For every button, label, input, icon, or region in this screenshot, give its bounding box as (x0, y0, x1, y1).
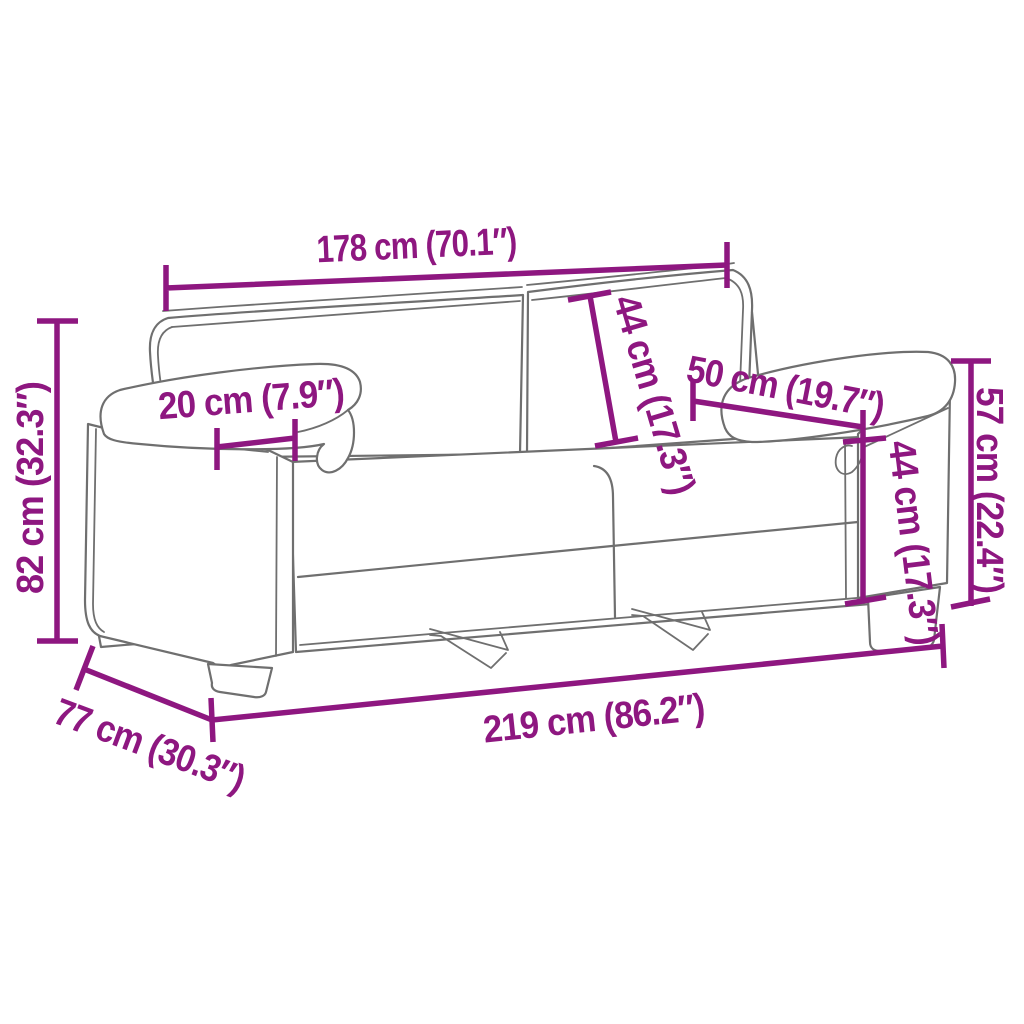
sofa-foot-front-left (208, 664, 272, 697)
sofa-dimension-drawing: 178 cm (70.1″) 44 cm (17.3″) 50 cm (19.7… (0, 0, 1024, 1024)
dimension-total-height: 82 cm (32.3″) (10, 321, 78, 641)
dimension-diagram: 178 cm (70.1″) 44 cm (17.3″) 50 cm (19.7… (0, 0, 1024, 1024)
dimension-total-depth-label: 77 cm (30.3″) (48, 691, 250, 800)
sofa-drawing (85, 263, 955, 697)
dimension-armrest-height: 57 cm (22.4″) (951, 361, 1010, 607)
dimension-total-width-label: 219 cm (86.2″) (481, 687, 706, 752)
seat-base (290, 437, 930, 652)
dimension-armrest-height-label: 57 cm (22.4″) (968, 387, 1010, 593)
dimension-total-height-label: 82 cm (32.3″) (10, 382, 52, 594)
dimension-inner-width-label: 178 cm (70.1″) (316, 221, 518, 272)
